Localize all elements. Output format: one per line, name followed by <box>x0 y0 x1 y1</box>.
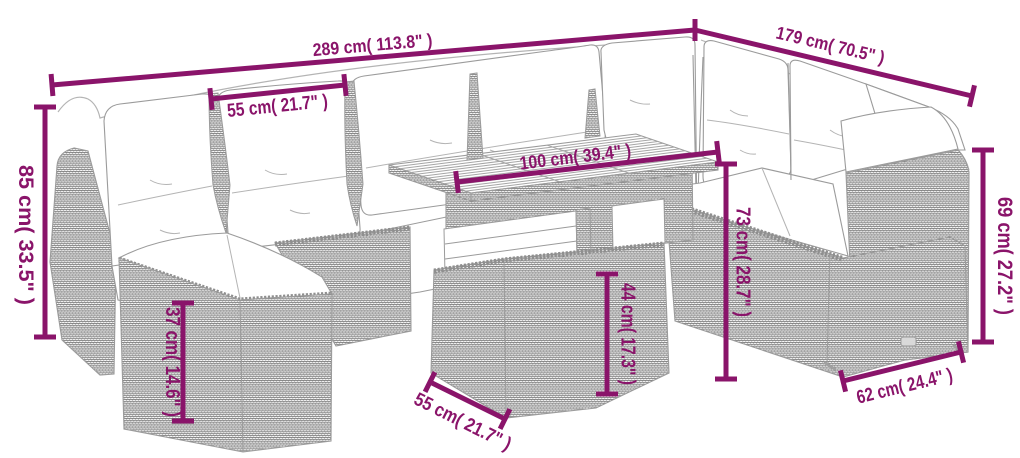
svg-text:73 cm( 28.7" ): 73 cm( 28.7" ) <box>732 207 754 317</box>
svg-text:85 cm( 33.5" ): 85 cm( 33.5" ) <box>14 165 37 305</box>
svg-text:37 cm( 14.6" ): 37 cm( 14.6" ) <box>161 307 183 417</box>
svg-text:44 cm( 17.3" ): 44 cm( 17.3" ) <box>617 283 639 385</box>
svg-text:69 cm( 27.2" ): 69 cm( 27.2" ) <box>993 197 1016 315</box>
